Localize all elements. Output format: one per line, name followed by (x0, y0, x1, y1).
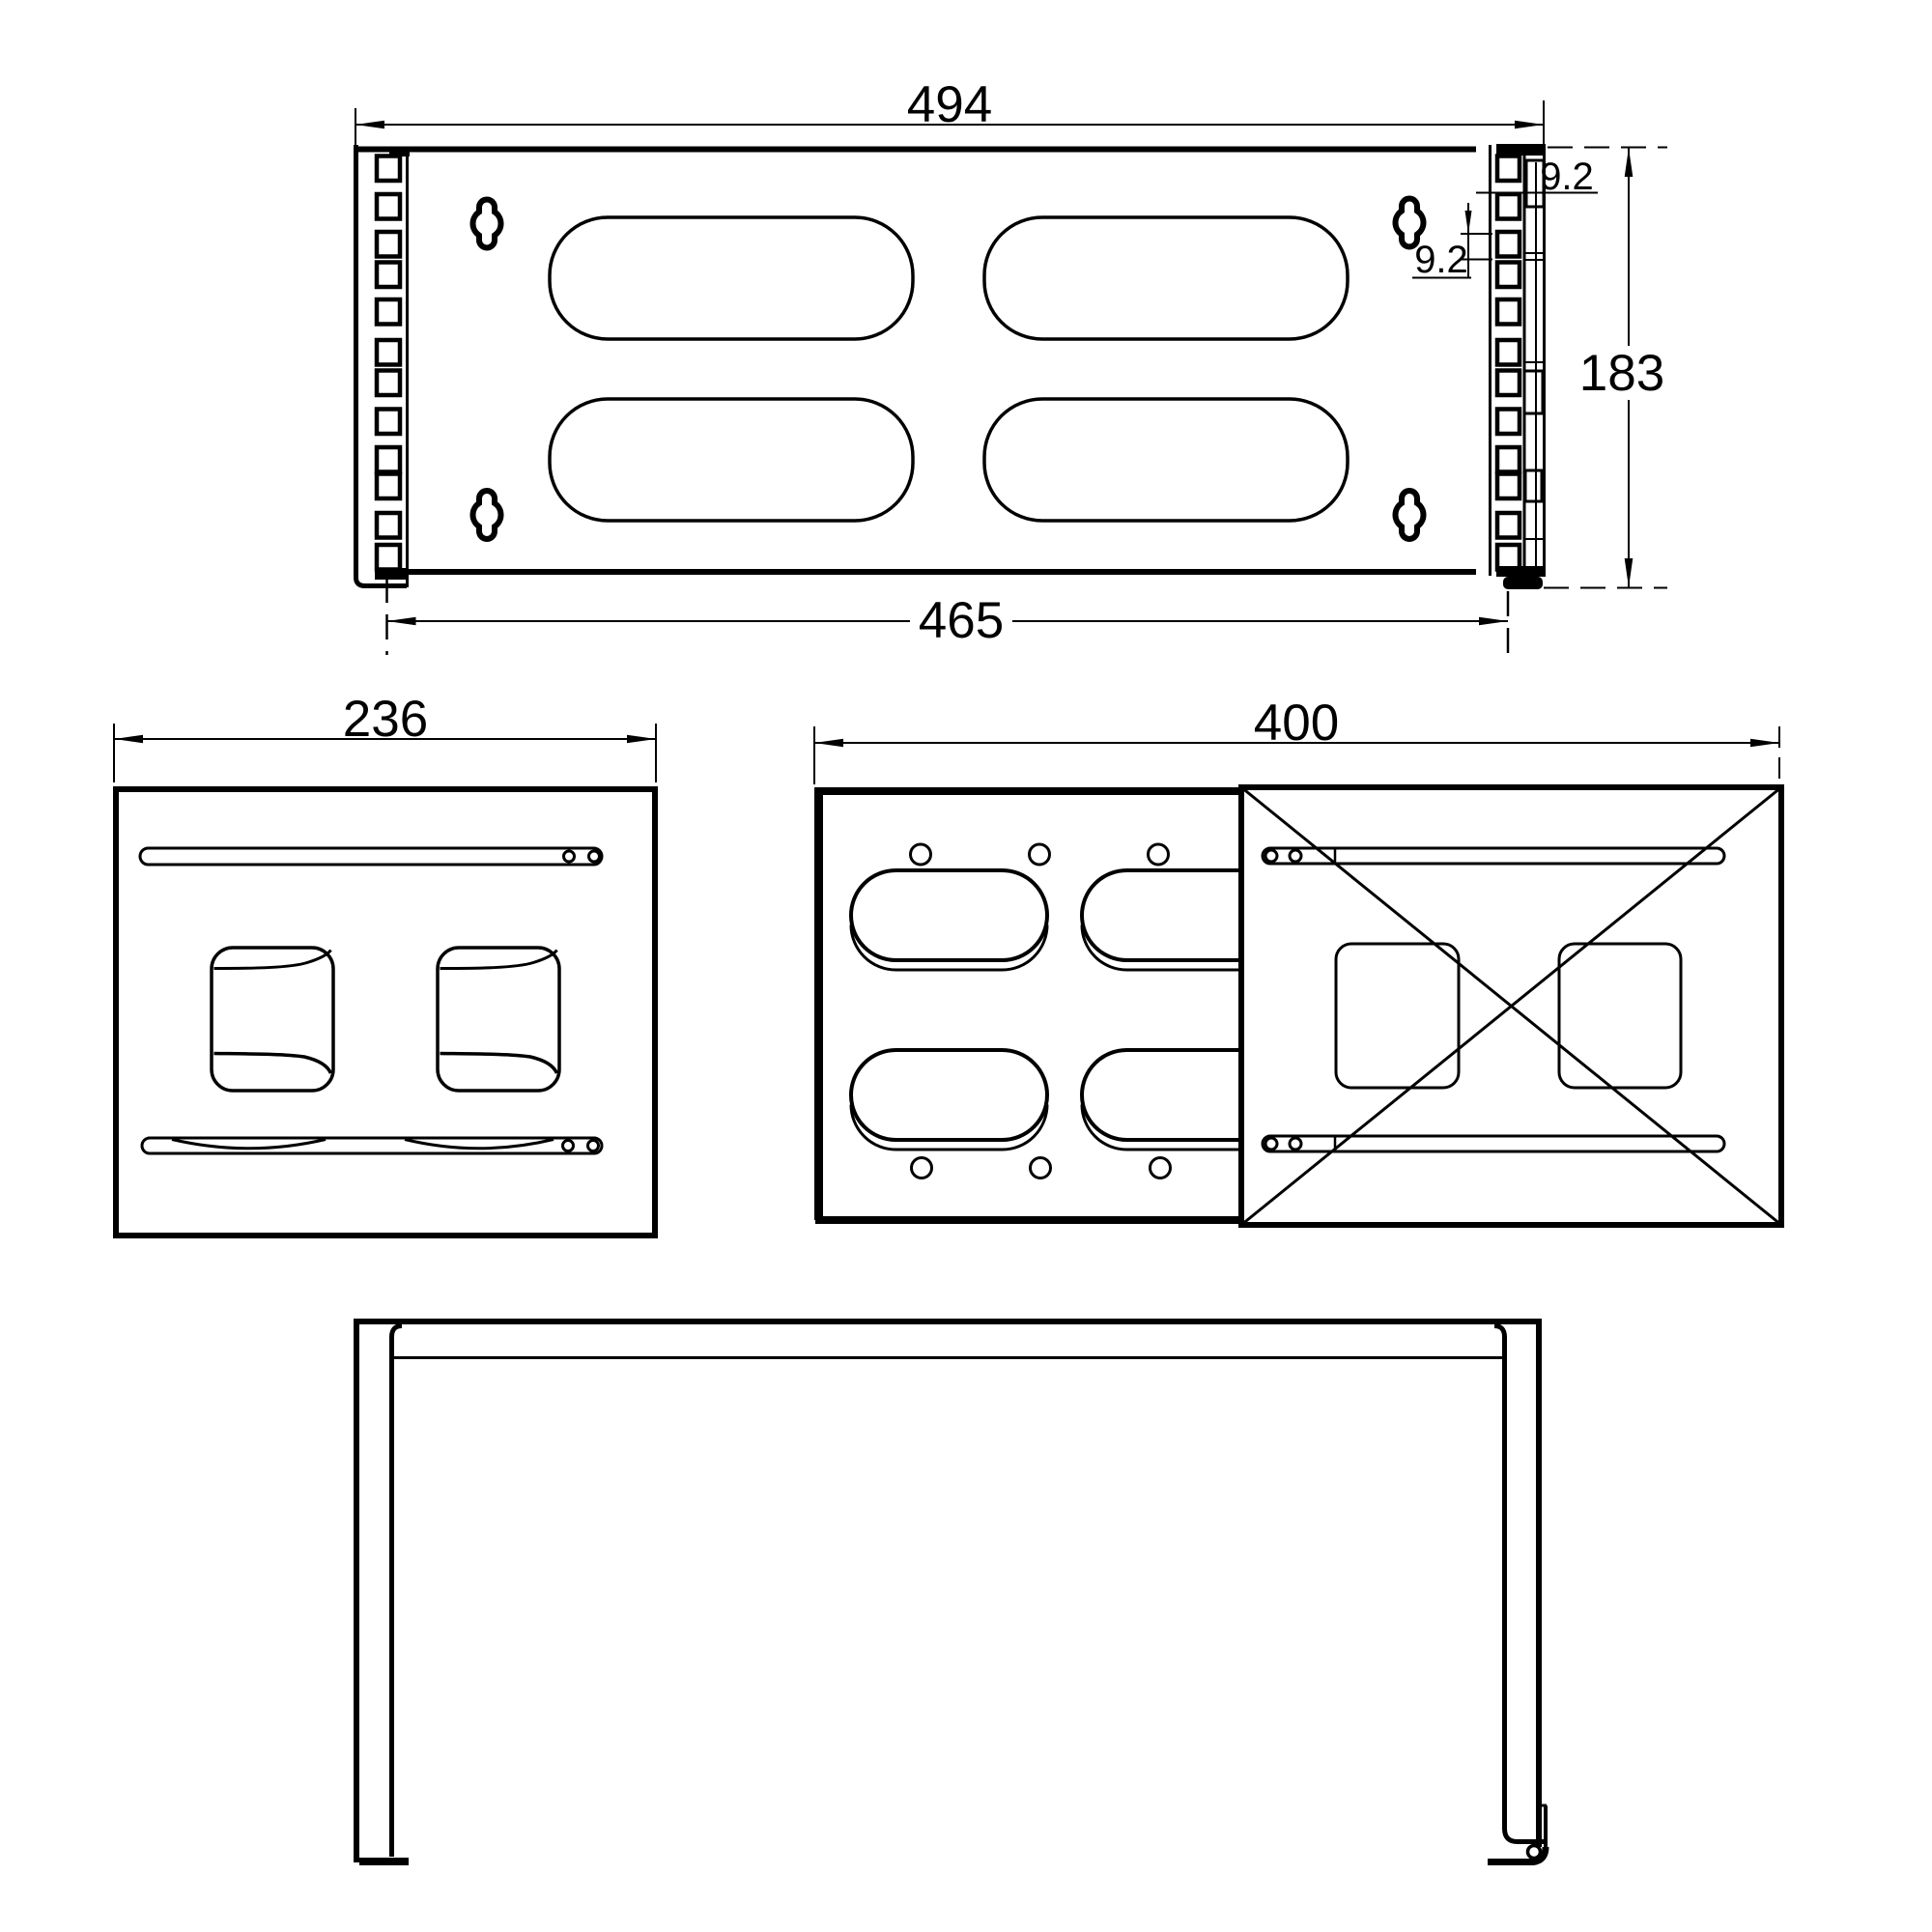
svg-text:9.2: 9.2 (1540, 156, 1594, 198)
svg-text:465: 465 (919, 592, 1004, 649)
svg-text:183: 183 (1579, 345, 1664, 402)
svg-text:9.2: 9.2 (1414, 239, 1468, 281)
